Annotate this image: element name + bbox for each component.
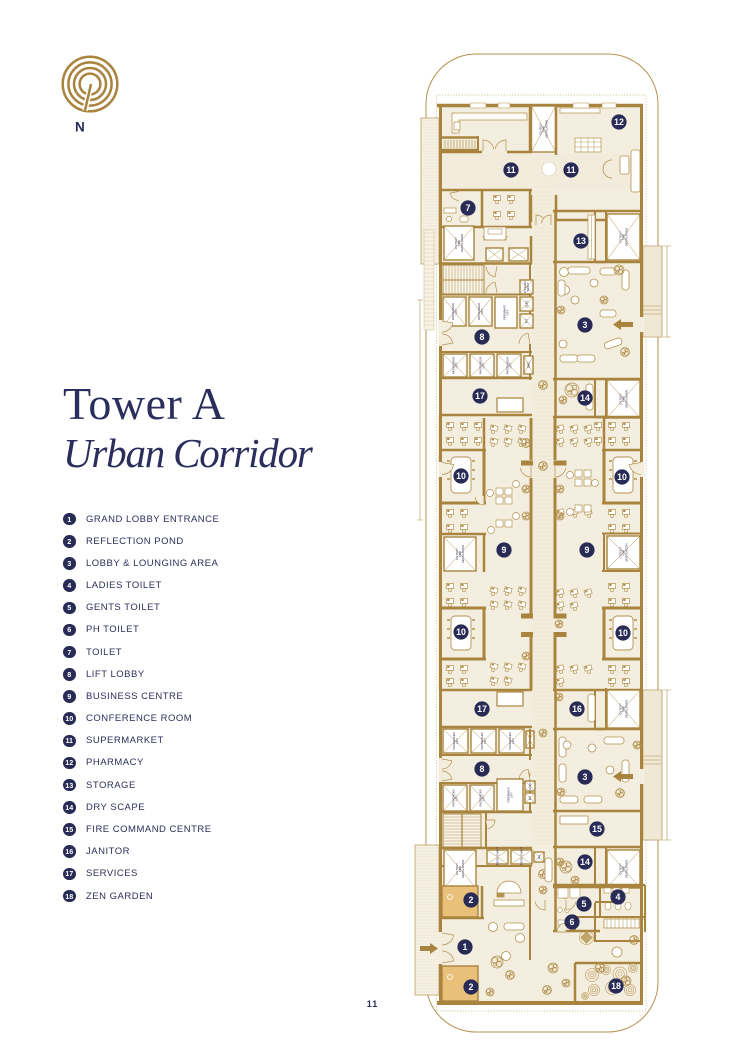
svg-text:LIFT: LIFT [482, 795, 486, 801]
svg-text:LIFT: LIFT [506, 309, 510, 315]
svg-text:VENTILATION: VENTILATION [545, 120, 549, 138]
svg-text:17: 17 [477, 704, 487, 714]
svg-text:2: 2 [469, 982, 474, 992]
svg-text:16: 16 [572, 704, 582, 714]
svg-text:LIFT: LIFT [454, 308, 458, 314]
svg-text:13: 13 [576, 236, 586, 246]
svg-text:15: 15 [592, 824, 602, 834]
svg-text:VENTILATION: VENTILATION [625, 700, 629, 718]
svg-text:LIFT: LIFT [480, 308, 484, 314]
svg-text:BMS: BMS [527, 362, 531, 368]
svg-text:ELEC: ELEC [525, 300, 529, 307]
svg-text:3: 3 [583, 320, 588, 330]
svg-text:14: 14 [580, 857, 590, 867]
svg-text:6: 6 [570, 917, 575, 927]
svg-text:LIFT: LIFT [509, 362, 513, 368]
svg-text:LIFT: LIFT [483, 738, 487, 744]
svg-text:LIFT: LIFT [455, 738, 459, 744]
svg-text:SHAFT: SHAFT [526, 282, 530, 291]
svg-text:7: 7 [466, 203, 471, 213]
svg-text:3: 3 [583, 772, 588, 782]
svg-text:14: 14 [580, 393, 590, 403]
svg-text:10: 10 [618, 628, 628, 638]
svg-text:N: N [75, 120, 85, 135]
svg-text:VENTILATION: VENTILATION [625, 543, 629, 561]
svg-text:PRESS. SHAFT: PRESS. SHAFT [496, 847, 500, 867]
svg-text:LIFT: LIFT [455, 362, 459, 368]
svg-text:ICT: ICT [528, 795, 532, 800]
svg-text:LIFT: LIFT [455, 795, 459, 801]
svg-text:11: 11 [506, 165, 515, 175]
svg-text:LIFT: LIFT [482, 362, 486, 368]
svg-text:VENTILATION: VENTILATION [625, 390, 629, 408]
svg-text:8: 8 [480, 332, 485, 342]
svg-text:ICT: ICT [525, 318, 529, 323]
svg-text:9: 9 [502, 545, 507, 555]
svg-text:VENTILATION: VENTILATION [625, 228, 629, 246]
svg-text:18: 18 [611, 981, 621, 991]
svg-text:exp: exp [537, 854, 541, 859]
svg-text:VENTILATION: VENTILATION [625, 860, 629, 878]
svg-text:11: 11 [566, 165, 575, 175]
svg-text:10: 10 [456, 471, 466, 481]
svg-text:8: 8 [480, 764, 485, 774]
svg-text:17: 17 [475, 391, 485, 401]
svg-text:5: 5 [582, 899, 587, 909]
svg-text:10: 10 [456, 627, 466, 637]
svg-text:LIFT: LIFT [510, 792, 514, 798]
svg-text:PRESS. SHAFT: PRESS. SHAFT [520, 847, 524, 867]
svg-text:10: 10 [617, 472, 627, 482]
svg-text:VENTILATION: VENTILATION [461, 860, 465, 878]
svg-text:1: 1 [463, 942, 468, 952]
svg-text:ELEC: ELEC [528, 782, 532, 789]
svg-text:2: 2 [469, 895, 474, 905]
svg-text:9: 9 [585, 545, 590, 555]
svg-text:4: 4 [616, 892, 621, 902]
svg-text:VENTILATION: VENTILATION [460, 234, 464, 252]
svg-text:VENTILATION: VENTILATION [461, 545, 465, 563]
svg-text:LIFT: LIFT [511, 738, 515, 744]
svg-text:12: 12 [614, 117, 624, 127]
